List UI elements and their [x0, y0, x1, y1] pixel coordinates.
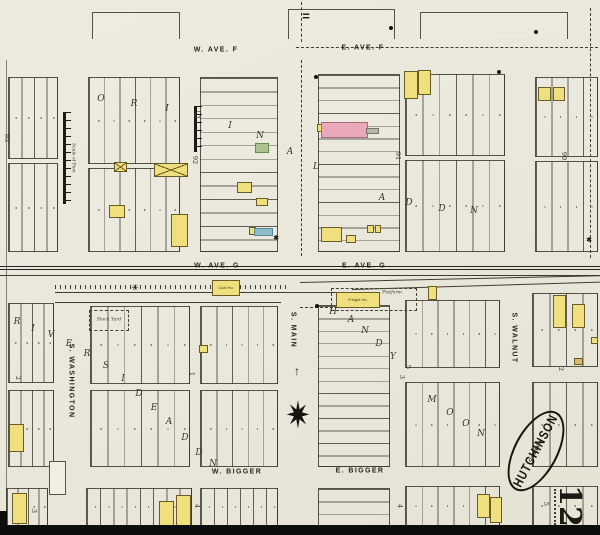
block-number: 92	[191, 156, 199, 164]
addition-letter: D	[195, 448, 202, 458]
addition-letter: E	[66, 339, 73, 349]
track-line	[55, 292, 367, 293]
scale-bar-label: Scale of Feet	[71, 143, 76, 173]
bridge-icon: =	[302, 9, 310, 24]
addition-letter: D	[375, 339, 382, 349]
building	[574, 358, 583, 365]
building-label: Coal Ho.	[218, 286, 234, 290]
building	[490, 497, 502, 523]
sheet-number: 12	[552, 488, 588, 524]
sanborn-map-sheet: Oct. 1888 HUTCHINSON KAN. 12 Coal Ho.Fre…	[0, 0, 600, 535]
building	[538, 87, 551, 101]
block-number: 90	[560, 152, 568, 160]
building	[9, 424, 24, 452]
addition-letter: I	[121, 374, 125, 384]
building	[254, 228, 273, 236]
block-number: 4	[396, 504, 404, 508]
block-number: 3	[30, 509, 38, 513]
addition-letter: H	[329, 307, 337, 317]
addition-letter: A	[379, 193, 386, 203]
city-block	[318, 305, 390, 467]
lot-number-marks	[408, 114, 502, 116]
building	[591, 337, 598, 344]
bottom-edge-shadow	[0, 525, 600, 535]
street-label-w-bigger: W. BIGGER	[212, 469, 262, 476]
dashed-street-line	[301, 60, 302, 256]
building	[321, 227, 342, 242]
street-label-s-main: S. MAIN	[290, 312, 297, 348]
building	[404, 71, 418, 99]
street-label-w-ave-g: W. AVE. G	[194, 263, 240, 270]
addition-letter: N	[209, 459, 217, 469]
lot-number-marks	[10, 342, 52, 344]
city-block	[8, 303, 54, 383]
building	[428, 286, 437, 300]
block-number: 2	[557, 367, 565, 371]
addition-letter: O	[462, 419, 469, 429]
addition-letter: Y	[390, 352, 396, 362]
addition-letter: R	[84, 349, 91, 359]
corner-dot	[389, 26, 393, 30]
building: Freight Ho.	[336, 292, 380, 308]
track-line	[300, 275, 600, 283]
addition-letter: V	[48, 330, 55, 340]
building	[114, 162, 127, 172]
block-number: 93	[3, 134, 11, 142]
building	[375, 225, 381, 233]
addition-letter: A	[166, 417, 173, 427]
building	[477, 494, 490, 518]
corner-shadow	[0, 511, 7, 527]
addition-letter: D	[438, 204, 445, 214]
block-number: 4	[193, 504, 201, 508]
block-number: 91	[394, 152, 402, 160]
city-block	[200, 390, 278, 467]
building	[418, 70, 431, 95]
city-block	[200, 306, 278, 384]
addition-letter: S	[103, 361, 109, 371]
lot-number-marks	[203, 344, 276, 346]
addition-letter: G	[194, 111, 201, 121]
small-map-label: Stock Yard	[97, 318, 122, 323]
addition-letter: D	[135, 389, 142, 399]
street-label-e-ave-g: E. AVE. G	[342, 263, 386, 270]
building	[553, 87, 565, 101]
building	[346, 235, 356, 243]
addition-letter: I	[228, 121, 232, 131]
lot-number-marks	[408, 333, 497, 335]
dashed-street-line	[590, 8, 591, 258]
building	[49, 461, 66, 495]
building	[109, 205, 125, 218]
addition-letter: N	[361, 326, 369, 336]
lot-number-marks	[408, 205, 502, 207]
addition-letter: D	[405, 198, 412, 208]
addition-letter: N	[256, 131, 264, 141]
building	[255, 143, 269, 153]
street-label-e-ave-f: E. AVE. F	[342, 45, 385, 52]
star-mark: ✱	[273, 234, 279, 242]
city-block	[200, 488, 278, 526]
lot-number-marks	[537, 206, 596, 208]
lot-number-marks	[534, 329, 595, 331]
lot-number-marks	[408, 424, 497, 426]
building	[171, 214, 188, 247]
map-edge-line	[6, 60, 7, 522]
lot-number-marks	[203, 428, 276, 430]
lot-number-marks	[91, 120, 177, 122]
city-block	[420, 12, 568, 39]
platform-hatch	[55, 285, 287, 289]
building	[553, 295, 566, 328]
addition-letter: I	[31, 324, 35, 334]
city-block	[200, 77, 278, 252]
building	[199, 345, 208, 353]
city-block	[92, 12, 180, 39]
corner-dot	[314, 75, 318, 79]
building	[366, 128, 379, 134]
city-block	[318, 74, 400, 252]
north-arrow-icon: ↑	[294, 364, 300, 378]
lot-number-marks	[537, 116, 596, 118]
building: Coal Ho.	[212, 280, 240, 296]
addition-letter: R	[14, 317, 21, 327]
railroad-main-track	[0, 266, 600, 270]
compass-rose-icon: ✷	[285, 394, 310, 438]
lot-number-marks	[10, 207, 56, 209]
building	[572, 304, 585, 328]
building	[237, 182, 252, 193]
city-block	[88, 77, 180, 164]
addition-letter: N	[470, 206, 478, 216]
city-block	[405, 300, 500, 368]
block-number: 3	[398, 375, 406, 379]
addition-letter: R	[131, 99, 138, 109]
lot-number-marks	[10, 117, 56, 119]
addition-letter: D	[181, 433, 188, 443]
corner-dot	[497, 70, 501, 74]
building-label: Freight Ho.	[348, 298, 368, 302]
building	[154, 163, 188, 177]
block-number: 1	[188, 372, 196, 376]
star-mark: ✱	[586, 236, 592, 244]
block-number: 5	[404, 365, 412, 369]
addition-letter: O	[446, 408, 453, 418]
addition-letter: O	[97, 94, 104, 104]
street-label-e-bigger: E. BIGGER	[336, 468, 385, 475]
city-block	[8, 77, 58, 159]
lot-number-marks	[93, 344, 187, 346]
building	[256, 198, 268, 206]
addition-letter: E	[151, 403, 158, 413]
lot-number-marks	[91, 209, 177, 211]
street-label-s-washington: S. WASHINGTON	[68, 344, 75, 419]
city-block	[318, 488, 390, 526]
corner-dot	[534, 30, 538, 34]
building	[321, 122, 368, 138]
addition-letter: L	[313, 162, 319, 172]
addition-letter: M	[427, 395, 436, 405]
small-map-label: Platform	[382, 291, 402, 296]
windmill-icon: ✳	[131, 283, 139, 294]
street-label-s-walnut: S. WALNUT	[511, 312, 518, 363]
street-label-w-ave-f: W. AVE. F	[194, 47, 239, 54]
city-block	[88, 168, 180, 252]
city-block	[8, 163, 58, 252]
addition-letter: N	[477, 429, 485, 439]
building	[12, 493, 27, 524]
city-block	[405, 382, 500, 467]
lot-number-marks	[93, 428, 187, 430]
track-line	[0, 275, 600, 276]
city-block	[405, 160, 505, 252]
lot-number-marks	[203, 506, 276, 508]
addition-letter: I	[165, 104, 169, 114]
block-number: 2	[14, 376, 22, 380]
city-block	[90, 390, 190, 467]
addition-letter: A	[287, 147, 294, 157]
block-number: 5	[542, 502, 550, 506]
corner-dot	[315, 304, 319, 308]
building	[367, 225, 374, 233]
track-line	[55, 302, 281, 303]
addition-letter: A	[348, 315, 355, 325]
